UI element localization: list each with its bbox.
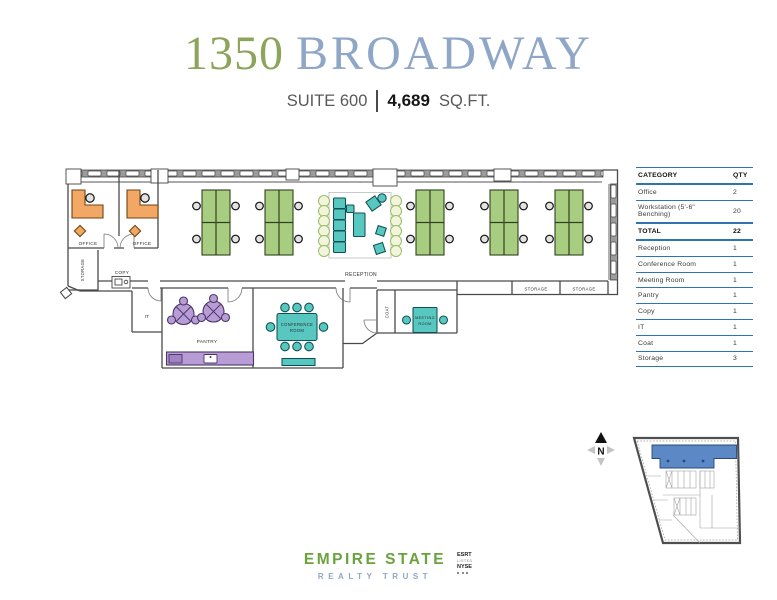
row-qty: 1	[729, 240, 753, 256]
credenza	[282, 359, 315, 366]
row-qty: 3	[729, 351, 753, 367]
storage-label: STORAGE	[572, 287, 595, 292]
reception-lounge: RECEPTION	[319, 193, 402, 279]
north-arrow-icon	[595, 432, 607, 443]
brand-name: EMPIRE STATE	[300, 551, 450, 569]
row-category: Copy	[636, 304, 729, 320]
pantry-label: PANTRY	[197, 339, 218, 345]
table-row: Coat 1	[636, 335, 753, 351]
row-category: Meeting Room	[636, 272, 729, 288]
table-row: Office 2	[636, 184, 753, 200]
row-qty: 22	[729, 223, 753, 240]
row-category: IT	[636, 320, 729, 336]
row-qty: 1	[729, 304, 753, 320]
suite-subtitle: SUITE 600 4,689 SQ.FT.	[0, 90, 777, 112]
office-label: OFFICE	[133, 241, 152, 246]
bench-cluster-4	[481, 190, 528, 255]
row-category: Coat	[636, 335, 729, 351]
row-qty: 1	[729, 335, 753, 351]
table-row: Storage 3	[636, 351, 753, 367]
row-category: Reception	[636, 240, 729, 256]
row-category: Office	[636, 184, 729, 200]
table-row: Reception 1	[636, 240, 753, 256]
it-label: IT	[145, 314, 150, 319]
bench-cluster-5	[546, 190, 593, 255]
bench-cluster-1	[193, 190, 240, 255]
table-row: Workstation (5'-6" Benching) 20	[636, 200, 753, 223]
coffee-table	[354, 213, 366, 237]
copy-label: COPY	[115, 270, 129, 275]
page-title: 1350BROADWAY	[0, 28, 777, 81]
row-category: Storage	[636, 351, 729, 367]
meeting-label-line2: ROOM	[418, 321, 431, 326]
row-qty: 1	[729, 288, 753, 304]
header-qty: QTY	[729, 168, 753, 184]
storage-room-left: STORAGE	[80, 259, 85, 282]
conference-label-line1: CONFERENCE	[281, 322, 313, 327]
building-name: BROADWAY	[296, 27, 593, 80]
copy-station: COPY	[112, 270, 130, 288]
row-category: Pantry	[636, 288, 729, 304]
building-footprint	[634, 438, 740, 543]
bench-cluster-2	[256, 190, 303, 255]
table-header-row: CATEGORY QTY	[636, 168, 753, 184]
north-label: N	[597, 447, 604, 458]
row-category: Workstation (5'-6" Benching)	[636, 200, 729, 223]
north-compass: N	[587, 432, 615, 466]
table-row: Pantry 1	[636, 288, 753, 304]
row-qty: 1	[729, 256, 753, 272]
pantry-area: PANTRY	[167, 295, 254, 366]
subtitle-divider	[376, 90, 378, 112]
pantry-table	[198, 295, 230, 323]
office-room-2: OFFICE	[127, 190, 158, 246]
nyse-badge: ESRT LISTED NYSE	[457, 552, 487, 574]
planter	[319, 196, 330, 257]
bench-cluster-3	[407, 190, 454, 255]
storage-label: STORAGE	[80, 259, 85, 282]
row-qty: 1	[729, 320, 753, 336]
area-value: 4,689	[387, 91, 430, 111]
brand-logo: EMPIRE STATE REALTY TRUST	[300, 551, 450, 581]
storage-label: STORAGE	[524, 287, 547, 292]
flyer-page: 1350BROADWAY SUITE 600 4,689 SQ.FT. CATE…	[0, 0, 777, 600]
row-category: Conference Room	[636, 256, 729, 272]
table-row: Meeting Room 1	[636, 272, 753, 288]
meeting-room: MEETING ROOM	[403, 308, 448, 333]
summary-table: CATEGORY QTY Office 2 Workstation (5'-6"…	[636, 167, 753, 367]
table-row: Conference Room 1	[636, 256, 753, 272]
table-row: IT 1	[636, 320, 753, 336]
brand-subname: REALTY TRUST	[300, 572, 450, 581]
row-qty: 1	[729, 272, 753, 288]
meeting-label-line1: MEETING	[415, 315, 435, 320]
office-label: OFFICE	[79, 241, 98, 246]
sofa	[334, 198, 355, 253]
reception-label: RECEPTION	[345, 272, 377, 278]
header-category: CATEGORY	[636, 168, 729, 184]
area-unit: SQ.FT.	[439, 92, 490, 111]
row-qty: 2	[729, 184, 753, 200]
building-number: 1350	[184, 27, 284, 80]
table-row: Copy 1	[636, 304, 753, 320]
office-room-1: OFFICE	[72, 190, 103, 246]
exchange-label: NYSE	[457, 564, 487, 571]
planter	[391, 196, 402, 257]
pantry-table	[168, 297, 200, 325]
floor-plan: OFFICE OFFICE STORAGE COPY	[58, 162, 638, 394]
conference-label-line2: ROOM	[290, 328, 304, 333]
key-plan: N	[583, 428, 773, 563]
row-qty: 20	[729, 200, 753, 223]
conference-room: CONFERENCE ROOM	[266, 303, 328, 365]
ticker-symbol: ESRT	[457, 552, 487, 559]
nyse-logo-icon	[457, 572, 468, 574]
lounge-chairs	[366, 194, 386, 255]
row-category: TOTAL	[636, 223, 729, 240]
table-total-row: TOTAL 22	[636, 223, 753, 240]
suite-label: SUITE 600	[287, 92, 368, 111]
coat-label: COAT	[385, 306, 390, 319]
